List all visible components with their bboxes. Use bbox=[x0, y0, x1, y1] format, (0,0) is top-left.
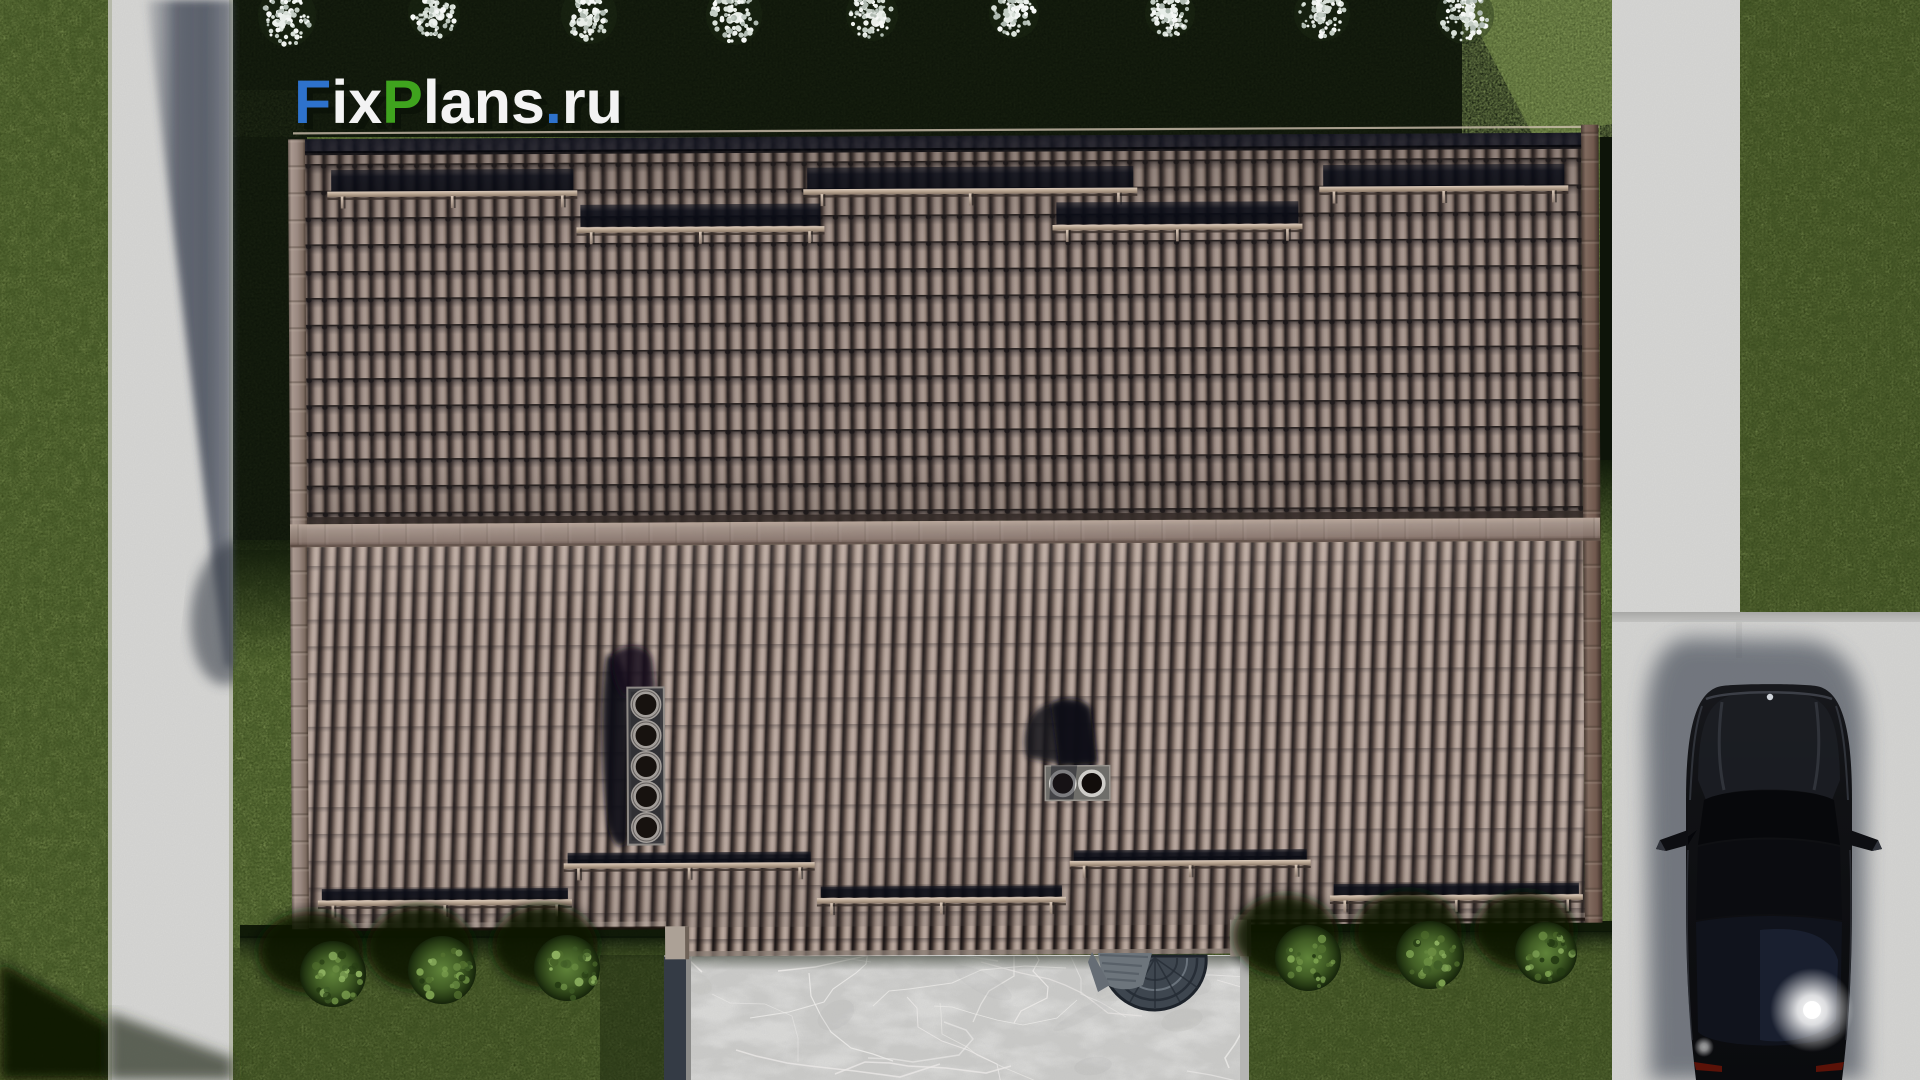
svg-text:FixPlans.ru: FixPlans.ru bbox=[294, 68, 623, 136]
